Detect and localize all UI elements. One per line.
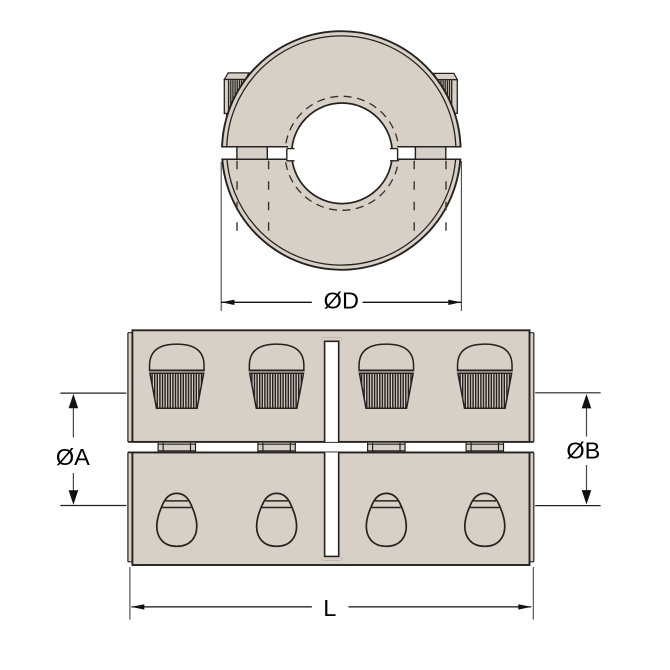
svg-text:ØA: ØA [56, 444, 90, 470]
svg-text:L: L [323, 595, 336, 621]
svg-text:ØB: ØB [566, 437, 600, 463]
svg-text:ØD: ØD [324, 287, 359, 313]
